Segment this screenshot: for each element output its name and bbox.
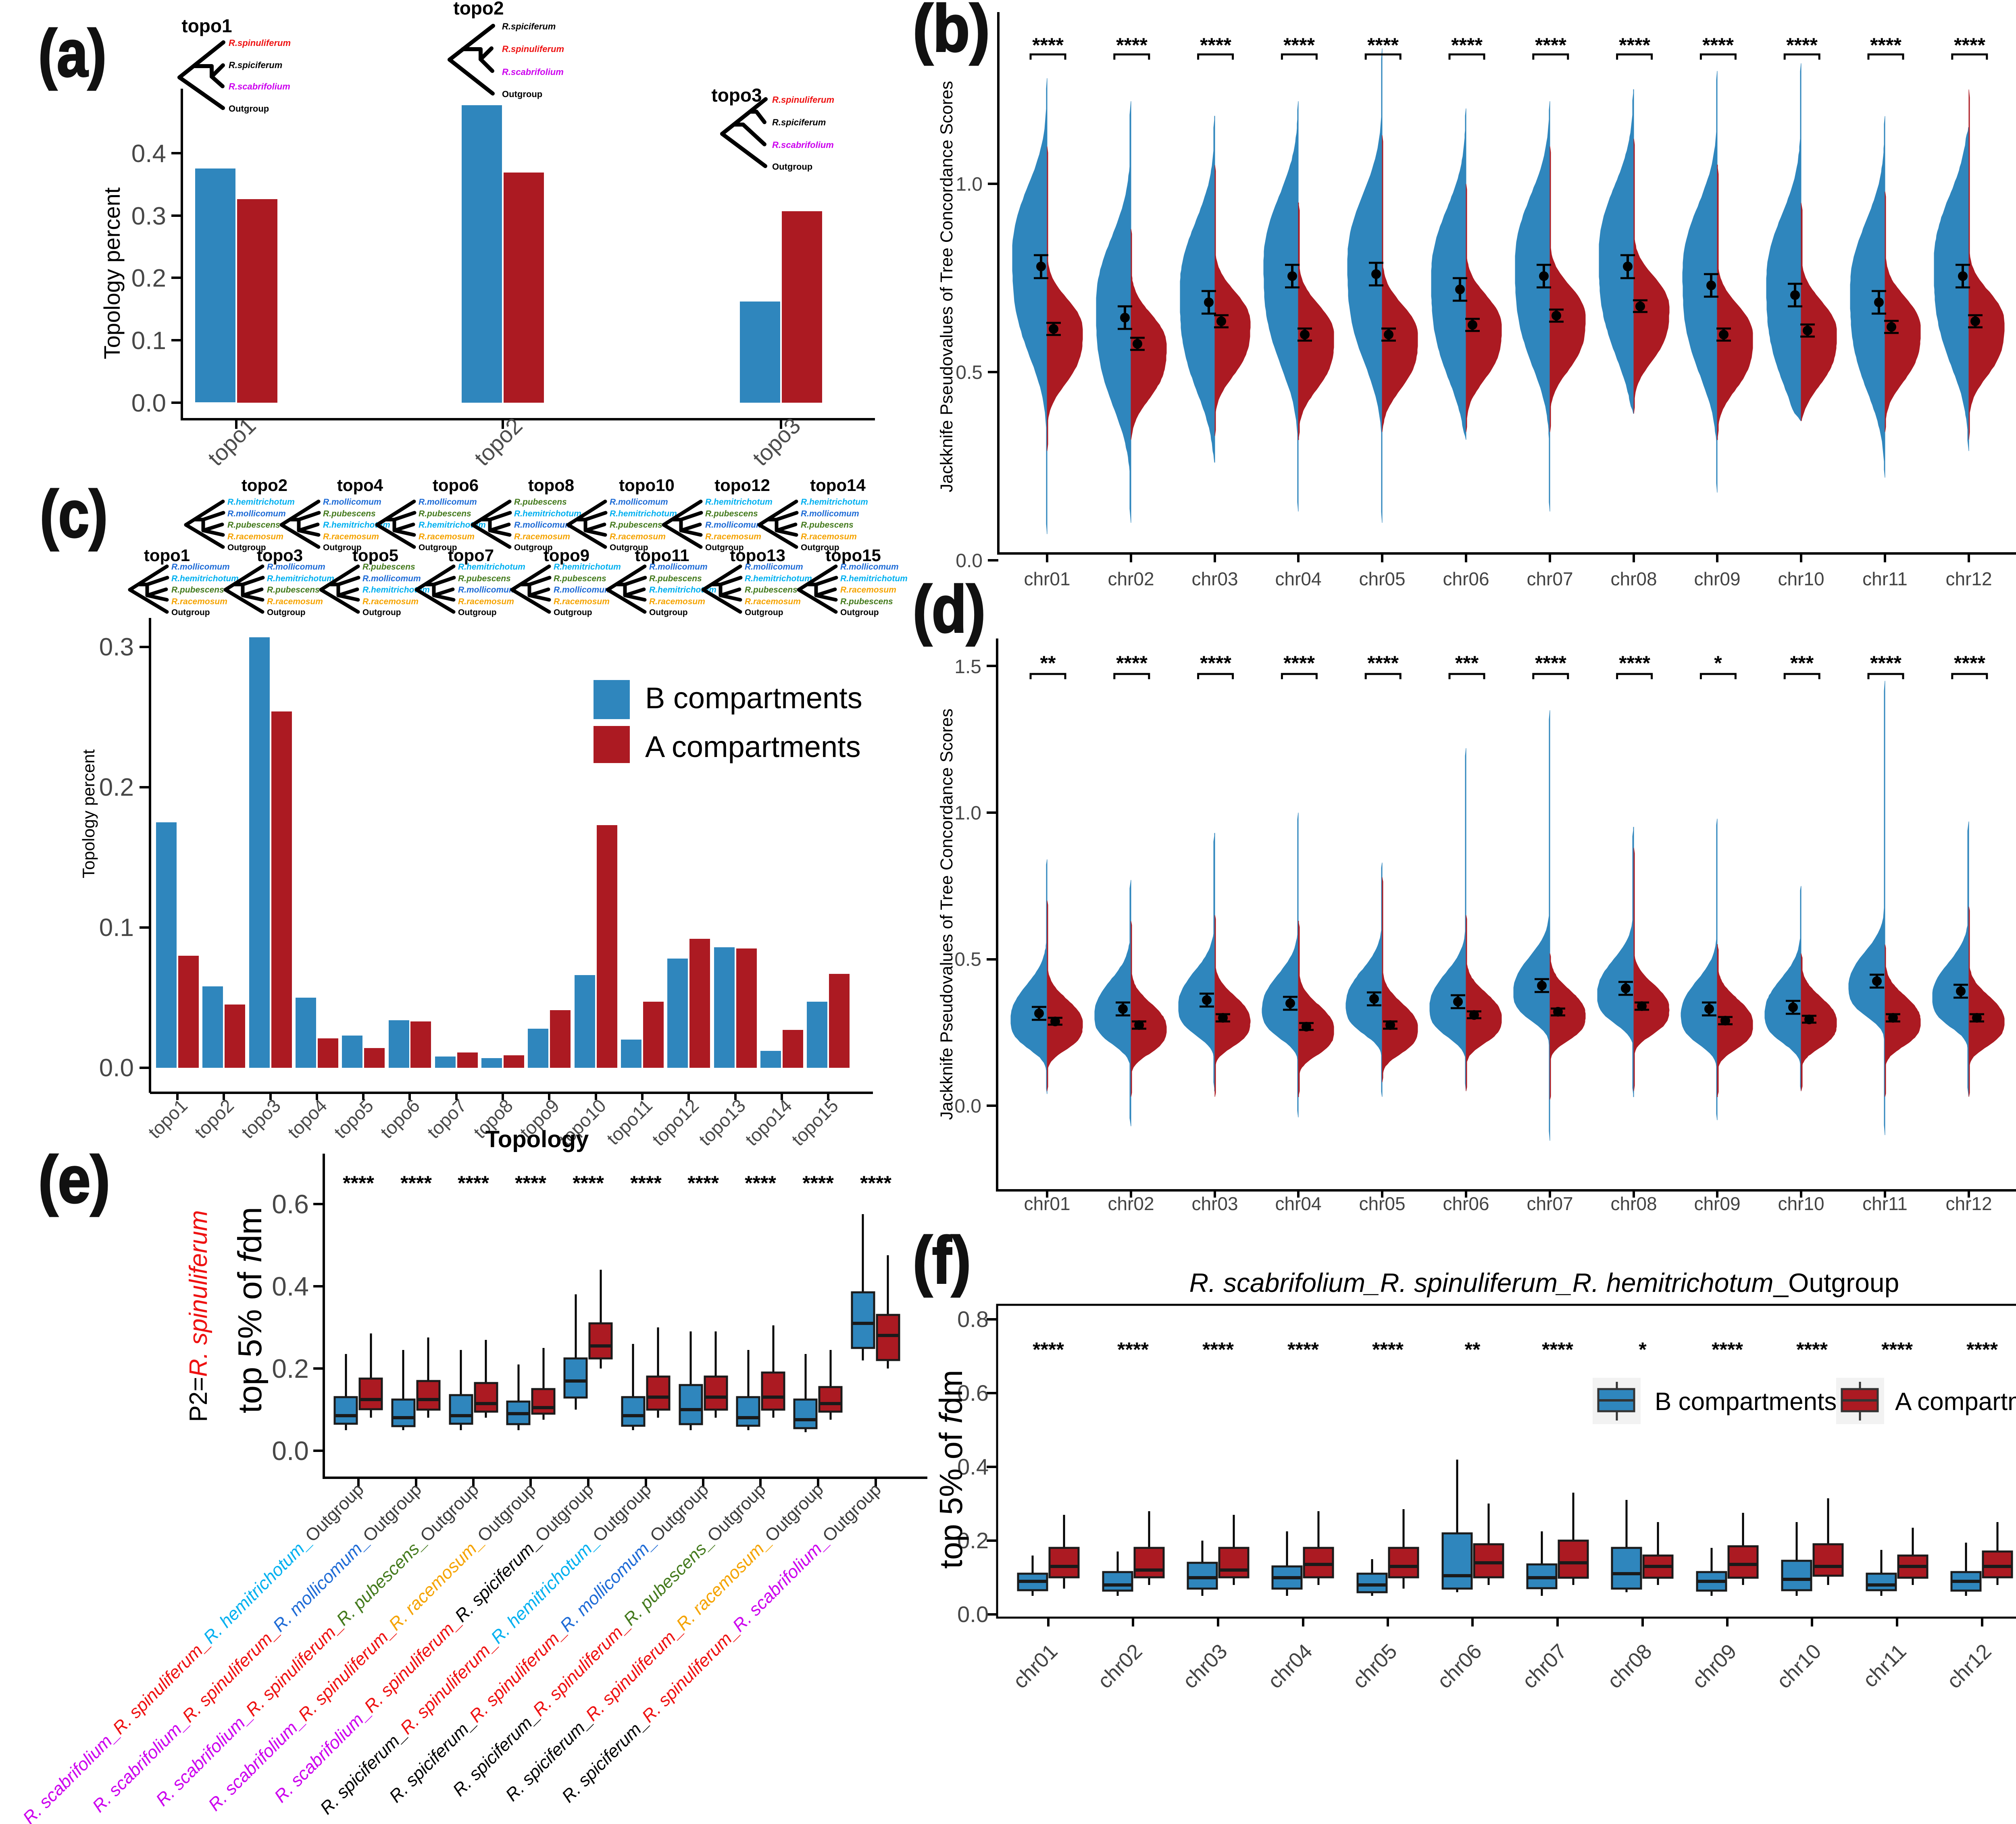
svg-text:0.8: 0.8 [957,1306,989,1332]
svg-text:R.hemitrichotum: R.hemitrichotum [267,574,334,583]
svg-text:****: **** [1033,1338,1064,1361]
svg-text:R.mollicomum: R.mollicomum [419,497,477,507]
svg-text:****: **** [1372,1338,1404,1361]
svg-text:topo12: topo12 [714,476,770,495]
svg-text:chr04: chr04 [1275,568,1321,589]
svg-text:1.5: 1.5 [954,656,981,678]
svg-text:chr01: chr01 [1024,1193,1070,1214]
svg-text:****: **** [1116,652,1148,674]
svg-text:(a): (a) [38,16,106,90]
svg-text:R.mollicomum: R.mollicomum [610,497,668,507]
svg-text:R.racemosum: R.racemosum [840,585,896,595]
svg-text:A compartments: A compartments [645,730,861,763]
svg-text:****: **** [1870,34,1901,56]
svg-text:R.mollicomum: R.mollicomum [801,509,859,518]
svg-text:****: **** [1116,34,1148,56]
svg-text:***: *** [1455,652,1479,674]
svg-text:0.2: 0.2 [131,264,166,292]
svg-text:0.1: 0.1 [99,914,134,942]
svg-text:topo1: topo1 [144,546,190,565]
svg-text:R.mollicomum: R.mollicomum [649,562,708,572]
svg-text:R.hemitrichotum: R.hemitrichotum [227,497,295,507]
svg-text:Outgroup: Outgroup [267,608,306,617]
svg-text:chr05: chr05 [1359,1193,1405,1214]
svg-text:topo9: topo9 [544,546,589,565]
svg-text:R.racemosum: R.racemosum [705,532,761,541]
svg-text:chr08: chr08 [1610,1193,1657,1214]
svg-text:****: **** [1786,34,1818,56]
svg-text:R.pubescens: R.pubescens [801,520,854,530]
svg-text:top 5% of fdm: top 5% of fdm [231,1207,269,1413]
svg-text:(f): (f) [913,1223,971,1297]
svg-text:R.racemosum: R.racemosum [801,532,857,541]
svg-text:0.5: 0.5 [954,949,981,970]
svg-text:****: **** [573,1172,604,1194]
svg-text:****: **** [1200,652,1231,674]
svg-text:****: **** [458,1172,489,1194]
svg-text:chr02: chr02 [1108,1193,1154,1214]
svg-text:R.racemosum: R.racemosum [419,532,475,541]
svg-text:R.hemitrichotum: R.hemitrichotum [458,562,525,572]
svg-text:R.racemosum: R.racemosum [171,597,227,606]
svg-text:***: *** [1790,652,1814,674]
svg-text:****: **** [1032,34,1064,56]
svg-text:Outgroup: Outgroup [745,608,783,617]
svg-text:Outgroup: Outgroup [362,608,401,617]
svg-text:chr10: chr10 [1778,568,1824,589]
svg-text:****: **** [1200,34,1231,56]
svg-text:Outgroup: Outgroup [458,608,497,617]
svg-text:Outgroup: Outgroup [840,608,879,617]
svg-text:Jackknife Pseudovalues of Tree: Jackknife Pseudovalues of Tree Concordan… [937,81,956,493]
svg-text:****: **** [1881,1338,1913,1361]
svg-text:****: **** [1367,34,1399,56]
svg-text:R.racemosum: R.racemosum [227,532,283,541]
svg-text:**: ** [1465,1338,1481,1361]
svg-text:chr03: chr03 [1191,568,1238,589]
svg-text:R.mollicomum: R.mollicomum [458,585,516,595]
svg-text:R.spinuliferum: R.spinuliferum [502,44,564,54]
svg-text:Outgroup: Outgroup [171,608,210,617]
svg-text:R.mollicomum: R.mollicomum [745,562,803,572]
svg-text:****: **** [1796,1338,1828,1361]
svg-text:****: **** [860,1172,891,1194]
svg-text:R.mollicomum: R.mollicomum [267,562,325,572]
svg-text:R.racemosum: R.racemosum [610,532,666,541]
svg-text:1.0: 1.0 [956,174,983,195]
svg-text:topo4: topo4 [337,476,383,495]
svg-text:chr11: chr11 [1862,568,1908,589]
svg-text:R.racemosum: R.racemosum [649,597,705,606]
svg-text:R.spiciferum: R.spiciferum [229,60,282,70]
svg-text:0.1: 0.1 [131,327,166,355]
svg-text:A compartments: A compartments [1895,1388,2016,1416]
svg-text:topo11: topo11 [635,546,689,565]
svg-text:R.pubescens: R.pubescens [610,520,662,530]
svg-text:topo10: topo10 [619,476,675,495]
svg-text:chr07: chr07 [1527,1193,1573,1214]
svg-text:0.0: 0.0 [131,389,166,417]
svg-text:(e): (e) [38,1142,110,1217]
svg-text:R.pubescens: R.pubescens [227,520,280,530]
svg-text:(d): (d) [913,572,985,646]
svg-text:topo2: topo2 [242,476,287,495]
svg-text:R.racemosum: R.racemosum [362,597,419,606]
svg-text:R.racemosum: R.racemosum [745,597,801,606]
svg-text:chr06: chr06 [1443,568,1489,589]
svg-text:(b): (b) [913,0,990,65]
svg-text:****: **** [400,1172,432,1194]
svg-text:Topology percent: Topology percent [99,187,125,359]
svg-text:R.racemosum: R.racemosum [458,597,514,606]
svg-text:0.3: 0.3 [99,633,134,661]
svg-text:**: ** [1040,652,1056,674]
svg-text:R.hemitrichotum: R.hemitrichotum [840,574,908,583]
svg-text:Topology percent: Topology percent [79,749,98,878]
svg-text:R.hemitrichotum: R.hemitrichotum [801,497,868,507]
svg-text:topo6: topo6 [433,476,479,495]
svg-text:B compartments: B compartments [645,681,862,715]
svg-text:Outgroup: Outgroup [502,89,542,99]
svg-text:R.pubescens: R.pubescens [323,509,376,518]
svg-text:chr12: chr12 [1945,568,1992,589]
svg-text:R.spiciferum: R.spiciferum [772,117,826,127]
svg-text:R.pubescens: R.pubescens [745,585,798,595]
svg-text:chr10: chr10 [1778,1193,1824,1214]
svg-text:R.mollicomum: R.mollicomum [171,562,230,572]
svg-text:0.6: 0.6 [272,1189,309,1219]
svg-text:R.scabrifolium: R.scabrifolium [772,140,834,150]
svg-text:****: **** [1702,34,1734,56]
svg-text:****: **** [1966,1338,1998,1361]
svg-text:****: **** [1542,1338,1573,1361]
svg-text:0.0: 0.0 [99,1054,134,1082]
svg-text:0.0: 0.0 [954,1096,981,1117]
svg-text:R.hemitrichotum: R.hemitrichotum [705,497,773,507]
svg-text:****: **** [1870,652,1901,674]
svg-text:R.mollicomum: R.mollicomum [554,585,612,595]
svg-text:R.mollicomum: R.mollicomum [514,520,573,530]
svg-text:P2=R. spinuliferum: P2=R. spinuliferum [185,1210,212,1422]
svg-text:****: **** [1367,652,1399,674]
svg-text:topo8: topo8 [528,476,574,495]
svg-text:****: **** [1451,34,1483,56]
svg-text:****: **** [343,1172,374,1194]
svg-text:B compartments: B compartments [1655,1388,1837,1416]
svg-text:chr05: chr05 [1359,568,1405,589]
svg-text:R.scabrifolium: R.scabrifolium [502,67,564,77]
svg-text:R.pubescens: R.pubescens [458,574,511,583]
svg-text:chr03: chr03 [1191,1193,1238,1214]
svg-text:0.0: 0.0 [272,1436,309,1466]
svg-text:R.mollicomum: R.mollicomum [227,509,286,518]
svg-text:chr09: chr09 [1694,1193,1740,1214]
svg-text:R.mollicomum: R.mollicomum [840,562,899,572]
svg-text:****: **** [745,1172,776,1194]
svg-text:R.racemosum: R.racemosum [554,597,610,606]
svg-text:Outgroup: Outgroup [772,162,812,172]
svg-text:*: * [1639,1338,1647,1361]
svg-text:R.hemitrichotum: R.hemitrichotum [610,509,677,518]
svg-text:****: **** [1202,1338,1234,1361]
svg-text:R.mollicomum: R.mollicomum [705,520,764,530]
svg-text:1.0: 1.0 [954,803,981,824]
svg-text:R.pubescens: R.pubescens [649,574,702,583]
svg-text:R.scabrifolium: R.scabrifolium [229,81,290,92]
svg-text:chr08: chr08 [1610,568,1657,589]
svg-text:chr02: chr02 [1108,568,1154,589]
svg-text:topo13: topo13 [730,546,785,565]
svg-text:Outgroup: Outgroup [554,608,592,617]
svg-text:R.spinuliferum: R.spinuliferum [229,38,291,48]
svg-text:(c): (c) [40,477,108,551]
svg-text:chr06: chr06 [1443,1193,1489,1214]
svg-text:R.mollicomum: R.mollicomum [362,574,421,583]
svg-text:R.pubescens: R.pubescens [840,597,893,606]
svg-text:Topology: Topology [485,1126,589,1152]
svg-text:R.racemosum: R.racemosum [323,532,379,541]
svg-text:R.hemitrichotum: R.hemitrichotum [554,562,621,572]
svg-text:****: **** [1712,1338,1743,1361]
svg-text:R.hemitrichotum: R.hemitrichotum [171,574,239,583]
svg-text:chr07: chr07 [1527,568,1573,589]
svg-text:****: **** [1117,1338,1149,1361]
svg-text:topo1: topo1 [181,15,232,36]
svg-text:Jackknife Pseudovalues of Tree: Jackknife Pseudovalues of Tree Concordan… [937,709,956,1120]
svg-text:R.spiciferum: R.spiciferum [502,21,556,31]
svg-text:R.hemitrichotum: R.hemitrichotum [745,574,812,583]
svg-text:R.racemosum: R.racemosum [267,597,323,606]
svg-text:R.racemosum: R.racemosum [514,532,570,541]
svg-text:chr11: chr11 [1862,1193,1908,1214]
svg-text:0.2: 0.2 [272,1354,309,1383]
svg-text:*: * [1714,652,1722,674]
svg-text:****: **** [1535,34,1566,56]
svg-text:****: **** [1954,34,1985,56]
svg-text:top 5% of fdm: top 5% of fdm [933,1370,969,1569]
svg-text:0.3: 0.3 [131,202,166,230]
svg-text:chr09: chr09 [1694,568,1740,589]
svg-text:topo5: topo5 [352,546,398,565]
svg-text:chr04: chr04 [1275,1193,1321,1214]
svg-text:R.pubescens: R.pubescens [554,574,606,583]
svg-text:R.pubescens: R.pubescens [267,585,320,595]
svg-text:0.4: 0.4 [131,140,166,168]
svg-text:0.0: 0.0 [957,1601,989,1627]
svg-text:topo3: topo3 [711,85,762,106]
svg-text:****: **** [630,1172,662,1194]
svg-text:****: **** [687,1172,719,1194]
svg-text:Outgroup: Outgroup [649,608,688,617]
svg-text:R. scabrifolium_R. spinuliferu: R. scabrifolium_R. spinuliferum_R. hemit… [1189,1268,1899,1298]
svg-text:****: **** [802,1172,834,1194]
svg-text:R.pubescens: R.pubescens [171,585,224,595]
svg-text:0.5: 0.5 [956,362,983,383]
svg-text:topo15: topo15 [825,546,881,565]
svg-text:R.pubescens: R.pubescens [514,497,567,507]
svg-text:****: **** [1287,1338,1319,1361]
svg-text:****: **** [1619,34,1650,56]
svg-text:0.2: 0.2 [99,774,134,801]
svg-text:R.spinuliferum: R.spinuliferum [772,95,834,105]
svg-text:****: **** [515,1172,546,1194]
svg-text:R.pubescens: R.pubescens [705,509,758,518]
svg-text:****: **** [1954,652,1985,674]
svg-text:topo7: topo7 [448,546,494,565]
svg-text:chr12: chr12 [1945,1193,1992,1214]
svg-text:chr01: chr01 [1024,568,1070,589]
svg-text:R.hemitrichotum: R.hemitrichotum [514,509,581,518]
svg-text:0.0: 0.0 [956,550,983,572]
svg-text:topo14: topo14 [810,476,866,495]
svg-text:****: **** [1619,652,1650,674]
svg-text:****: **** [1283,34,1315,56]
svg-text:topo2: topo2 [453,0,504,19]
svg-text:R.pubescens: R.pubescens [419,509,471,518]
svg-text:****: **** [1283,652,1315,674]
svg-text:R.pubescens: R.pubescens [362,562,415,572]
svg-text:R.mollicomum: R.mollicomum [323,497,381,507]
svg-text:topo3: topo3 [257,546,303,565]
svg-text:Outgroup: Outgroup [229,104,269,114]
svg-text:****: **** [1535,652,1566,674]
svg-text:0.4: 0.4 [272,1271,309,1301]
